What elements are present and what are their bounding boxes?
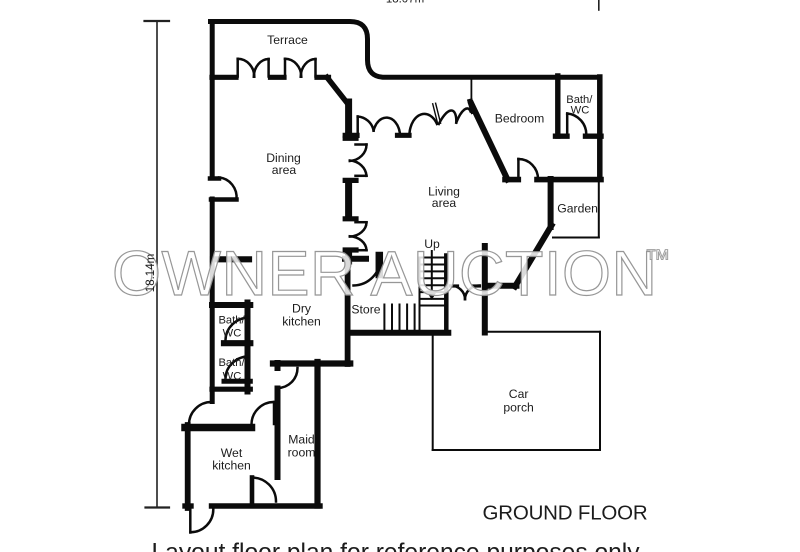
svg-text:Car: Car — [509, 387, 529, 401]
svg-text:Bath/: Bath/ — [218, 357, 245, 369]
svg-text:™: ™ — [645, 244, 671, 274]
svg-text:WC: WC — [223, 328, 242, 340]
svg-text:kitchen: kitchen — [212, 458, 251, 472]
svg-text:Maid: Maid — [288, 432, 314, 446]
svg-text:area: area — [432, 196, 457, 210]
svg-text:area: area — [272, 163, 297, 177]
svg-text:kitchen: kitchen — [282, 315, 321, 329]
svg-text:room: room — [288, 445, 316, 459]
svg-text:18.14m: 18.14m — [145, 254, 157, 292]
svg-text:Garden: Garden — [557, 201, 598, 215]
svg-text:Bedroom: Bedroom — [495, 112, 544, 126]
svg-text:Bath/: Bath/ — [218, 314, 245, 326]
svg-text:porch: porch — [503, 401, 534, 415]
svg-text:GROUND FLOOR: GROUND FLOOR — [482, 502, 647, 525]
svg-text:WC: WC — [223, 371, 242, 383]
svg-text:18.07m: 18.07m — [386, 0, 424, 6]
svg-text:Layout floor plan for referenc: Layout floor plan for reference purposes… — [152, 540, 641, 552]
svg-text:WC: WC — [571, 105, 590, 117]
svg-text:Terrace: Terrace — [267, 33, 308, 47]
svg-text:OWNER AUCTION: OWNER AUCTION — [112, 239, 658, 309]
